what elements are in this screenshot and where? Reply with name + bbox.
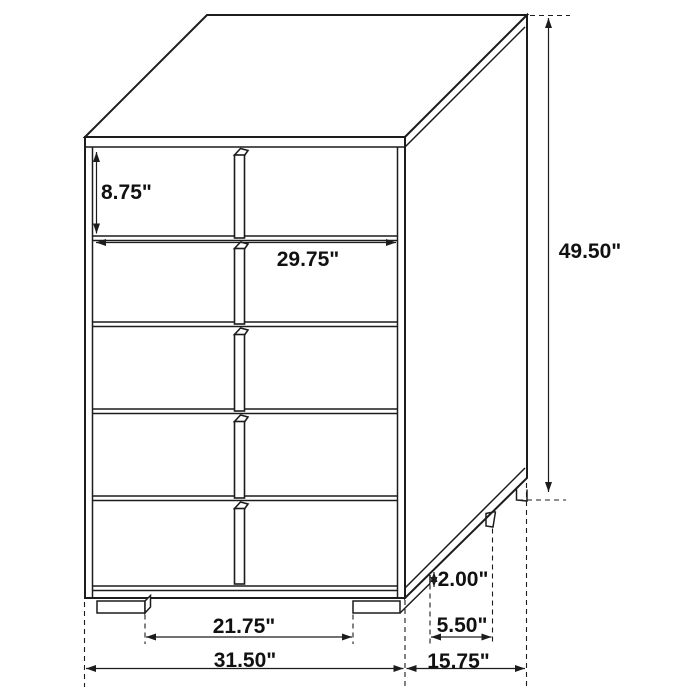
dimension-foot-spacing-width: 21.75" xyxy=(145,615,353,645)
drawer-handle xyxy=(235,422,245,499)
dimension-label-base-height: 2.00" xyxy=(438,568,489,591)
dimension-base-height: 2.00" xyxy=(434,568,488,591)
back-corner-foot xyxy=(517,488,528,502)
furniture-dimension-diagram: 8.75" 29.75" 49.50" 2.00" xyxy=(0,0,700,700)
dimension-label-overall-depth: 15.75" xyxy=(427,650,490,673)
chest-drawing xyxy=(85,15,527,613)
diagram-svg: 8.75" 29.75" 49.50" 2.00" xyxy=(0,0,700,700)
dimension-label-drawer-height: 8.75" xyxy=(101,181,152,204)
drawer-handle xyxy=(235,335,245,412)
dimension-label-overall-width: 31.50" xyxy=(214,649,277,672)
drawer-handle xyxy=(235,249,245,325)
dimension-label-foot-spacing-depth: 5.50" xyxy=(437,614,488,637)
drawer-handle xyxy=(235,509,245,585)
dimension-label-overall-height: 49.50" xyxy=(559,240,622,263)
front-left-foot xyxy=(97,601,145,613)
dimension-label-drawer-width: 29.75" xyxy=(277,248,340,271)
dimension-overall-height: 49.50" xyxy=(518,16,621,501)
drawer-handle xyxy=(235,155,245,238)
dimension-label-foot-spacing-width: 21.75" xyxy=(213,615,276,638)
front-right-foot xyxy=(353,601,400,613)
